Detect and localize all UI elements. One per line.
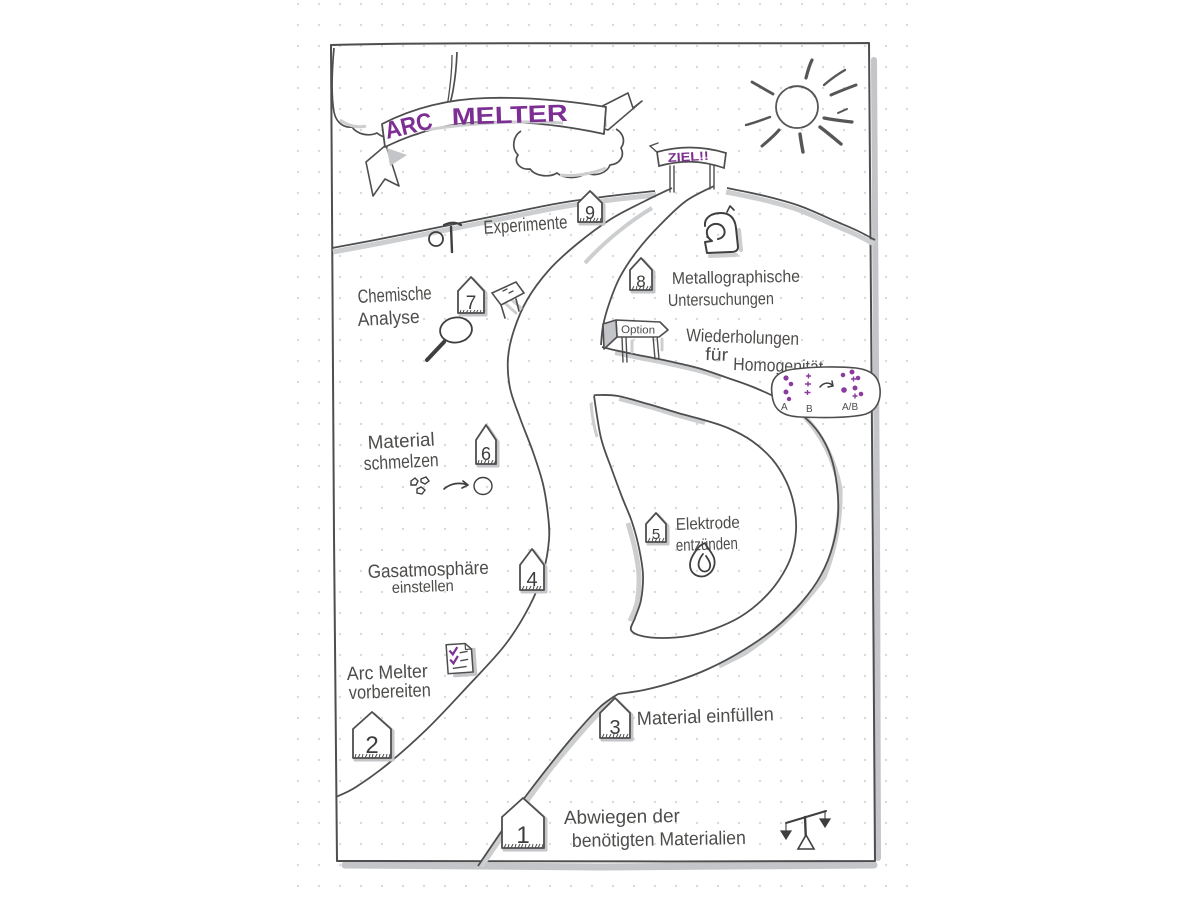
svg-text:1: 1	[516, 822, 529, 849]
svg-text:für: für	[705, 344, 729, 365]
svg-text:B: B	[806, 404, 813, 415]
svg-text:Metallographische: Metallographische	[672, 267, 800, 288]
svg-text:Elektrode: Elektrode	[675, 513, 740, 534]
svg-text:schmelzen: schmelzen	[363, 450, 439, 475]
svg-text:7: 7	[466, 293, 477, 314]
svg-text:6: 6	[481, 444, 491, 464]
svg-text:Analyse: Analyse	[357, 307, 420, 331]
svg-text:entzünden: entzünden	[675, 534, 738, 555]
svg-text:vorbereiten: vorbereiten	[348, 680, 431, 704]
svg-text:MELTER: MELTER	[451, 100, 568, 131]
svg-text:8: 8	[636, 272, 645, 291]
svg-text:5: 5	[652, 526, 660, 543]
svg-text:Abwiegen der: Abwiegen der	[564, 806, 681, 829]
svg-text:3: 3	[609, 717, 620, 739]
svg-text:A: A	[781, 402, 788, 413]
svg-text:4: 4	[526, 569, 537, 591]
svg-text:A/B: A/B	[842, 402, 858, 413]
svg-text:benötigten Materialien: benötigten Materialien	[572, 828, 746, 852]
svg-text:Option: Option	[621, 324, 655, 337]
svg-text:einstellen: einstellen	[392, 578, 455, 597]
svg-text:9: 9	[585, 203, 595, 223]
svg-text:ZIEL!!: ZIEL!!	[667, 149, 709, 165]
svg-text:Wiederholungen: Wiederholungen	[686, 325, 800, 349]
svg-text:2: 2	[365, 732, 378, 759]
svg-text:Chemische: Chemische	[357, 283, 432, 308]
svg-text:Untersuchungen: Untersuchungen	[668, 289, 774, 310]
